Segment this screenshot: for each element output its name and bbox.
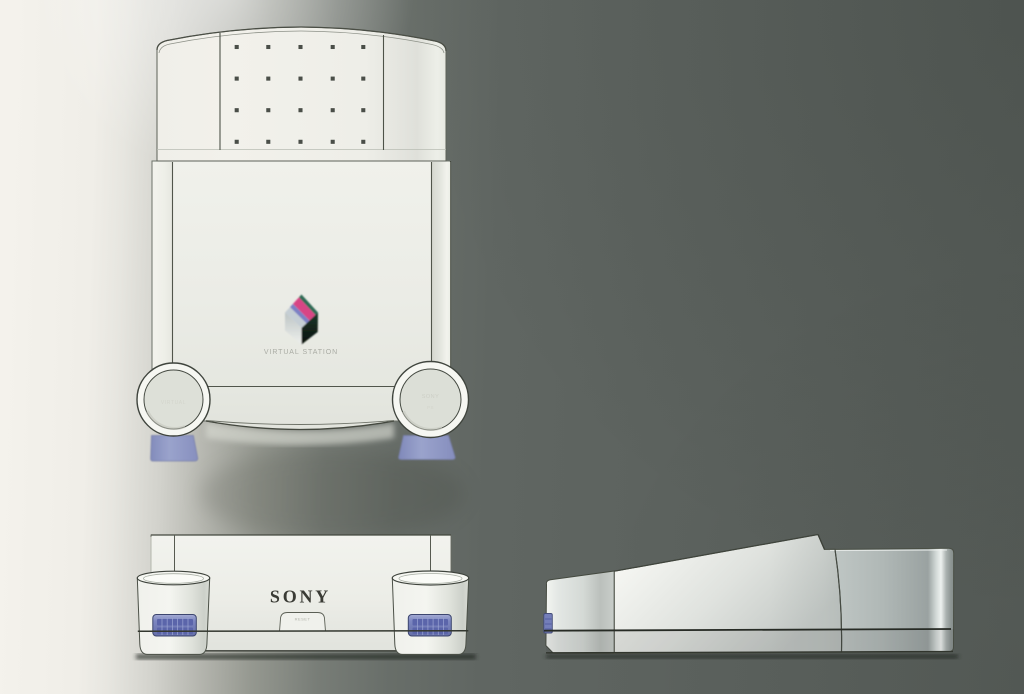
svg-text:VIRTUAL STATION: VIRTUAL STATION bbox=[264, 349, 338, 356]
svg-text:SONY: SONY bbox=[270, 587, 331, 607]
svg-text:PS: PS bbox=[427, 405, 434, 410]
svg-text:RESET: RESET bbox=[295, 617, 311, 622]
svg-text:VIRTUAL: VIRTUAL bbox=[161, 400, 186, 406]
svg-text:SONY: SONY bbox=[422, 394, 440, 400]
